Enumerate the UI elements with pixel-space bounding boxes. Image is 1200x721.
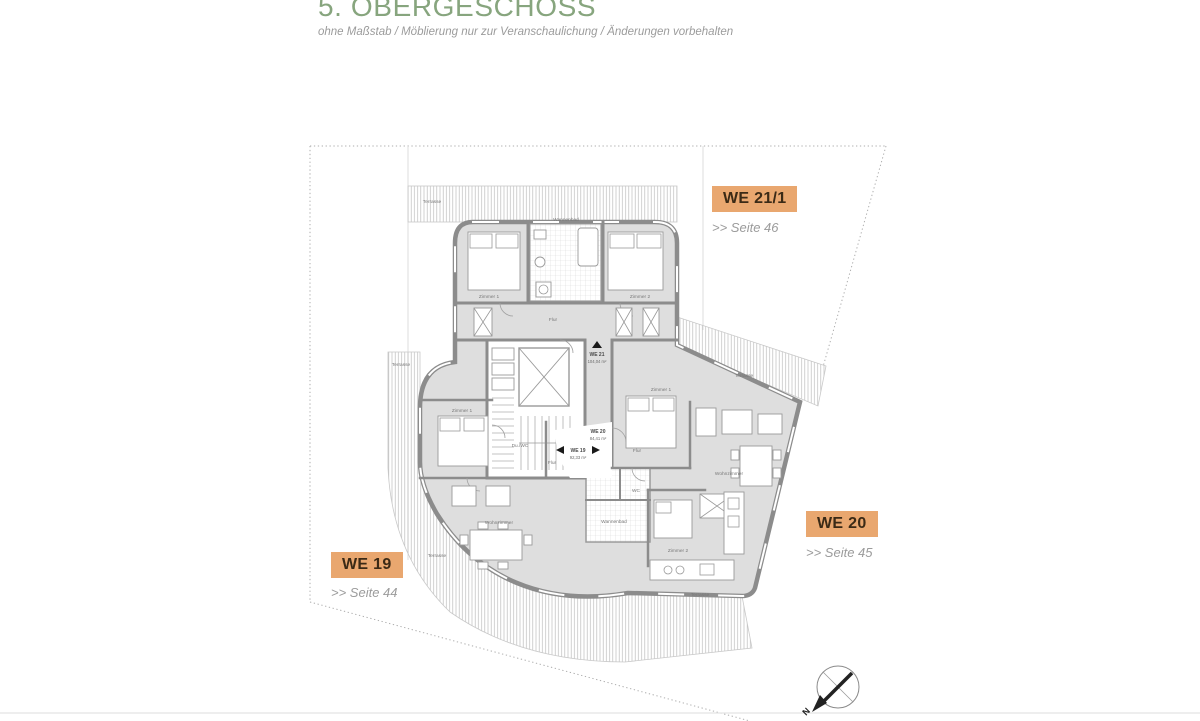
svg-text:WE 20: WE 20 — [590, 429, 605, 435]
svg-text:WC: WC — [632, 488, 641, 494]
svg-text:Flur: Flur — [548, 460, 557, 466]
svg-text:WE 19: WE 19 — [570, 448, 585, 454]
unit-label-we20: WE 20 — [806, 511, 878, 537]
compass-icon: N — [800, 666, 859, 717]
svg-text:Wohnzimmer: Wohnzimmer — [715, 471, 744, 477]
svg-text:Du./WC: Du./WC — [512, 443, 529, 449]
svg-text:Terrasse: Terrasse — [691, 592, 710, 598]
page-link-we20[interactable]: >> Seite 45 — [806, 545, 873, 560]
site-plan-drawing: WE 21 104,04 m² WE 19 92,33 m² WE 20 84,… — [0, 0, 1200, 721]
svg-text:Terrasse: Terrasse — [735, 373, 754, 379]
svg-text:Zimmer 2: Zimmer 2 — [630, 294, 651, 300]
svg-text:Zimmer 2: Zimmer 2 — [668, 548, 689, 554]
page-link-we19[interactable]: >> Seite 44 — [331, 585, 398, 600]
unit-label-we21: WE 21/1 — [712, 186, 797, 212]
svg-text:Terrasse: Terrasse — [423, 199, 442, 205]
svg-text:WE 21: WE 21 — [589, 352, 604, 358]
svg-text:Terrasse: Terrasse — [392, 362, 411, 368]
svg-text:Wannenbad: Wannenbad — [601, 519, 627, 525]
unit-label-we19: WE 19 — [331, 552, 403, 578]
svg-text:Zimmer 1: Zimmer 1 — [651, 387, 672, 393]
svg-text:Terrasse: Terrasse — [428, 553, 447, 559]
compass-north-label: N — [800, 706, 812, 718]
svg-text:Zimmer 1: Zimmer 1 — [479, 294, 500, 300]
svg-text:Flur: Flur — [633, 448, 642, 454]
svg-text:Flur: Flur — [549, 317, 558, 323]
svg-text:Wannenbad: Wannenbad — [553, 217, 579, 223]
svg-text:84,41 m²: 84,41 m² — [590, 436, 607, 441]
svg-text:Wohnzimmer: Wohnzimmer — [485, 520, 514, 526]
svg-text:92,33 m²: 92,33 m² — [570, 455, 587, 460]
page-link-we21[interactable]: >> Seite 46 — [712, 220, 779, 235]
floorplan-page: 5. OBERGESCHOSS ohne Maßstab / Möblierun… — [0, 0, 1200, 721]
svg-text:104,04 m²: 104,04 m² — [588, 359, 607, 364]
svg-text:Zimmer 1: Zimmer 1 — [452, 408, 473, 414]
